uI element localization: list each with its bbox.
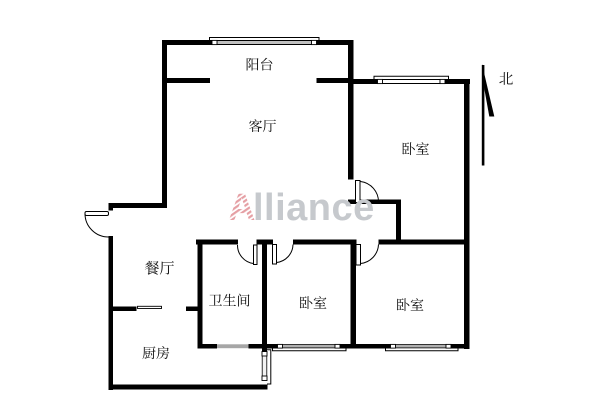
svg-text:lliance: lliance	[253, 187, 375, 229]
svg-text:A: A	[228, 187, 255, 229]
